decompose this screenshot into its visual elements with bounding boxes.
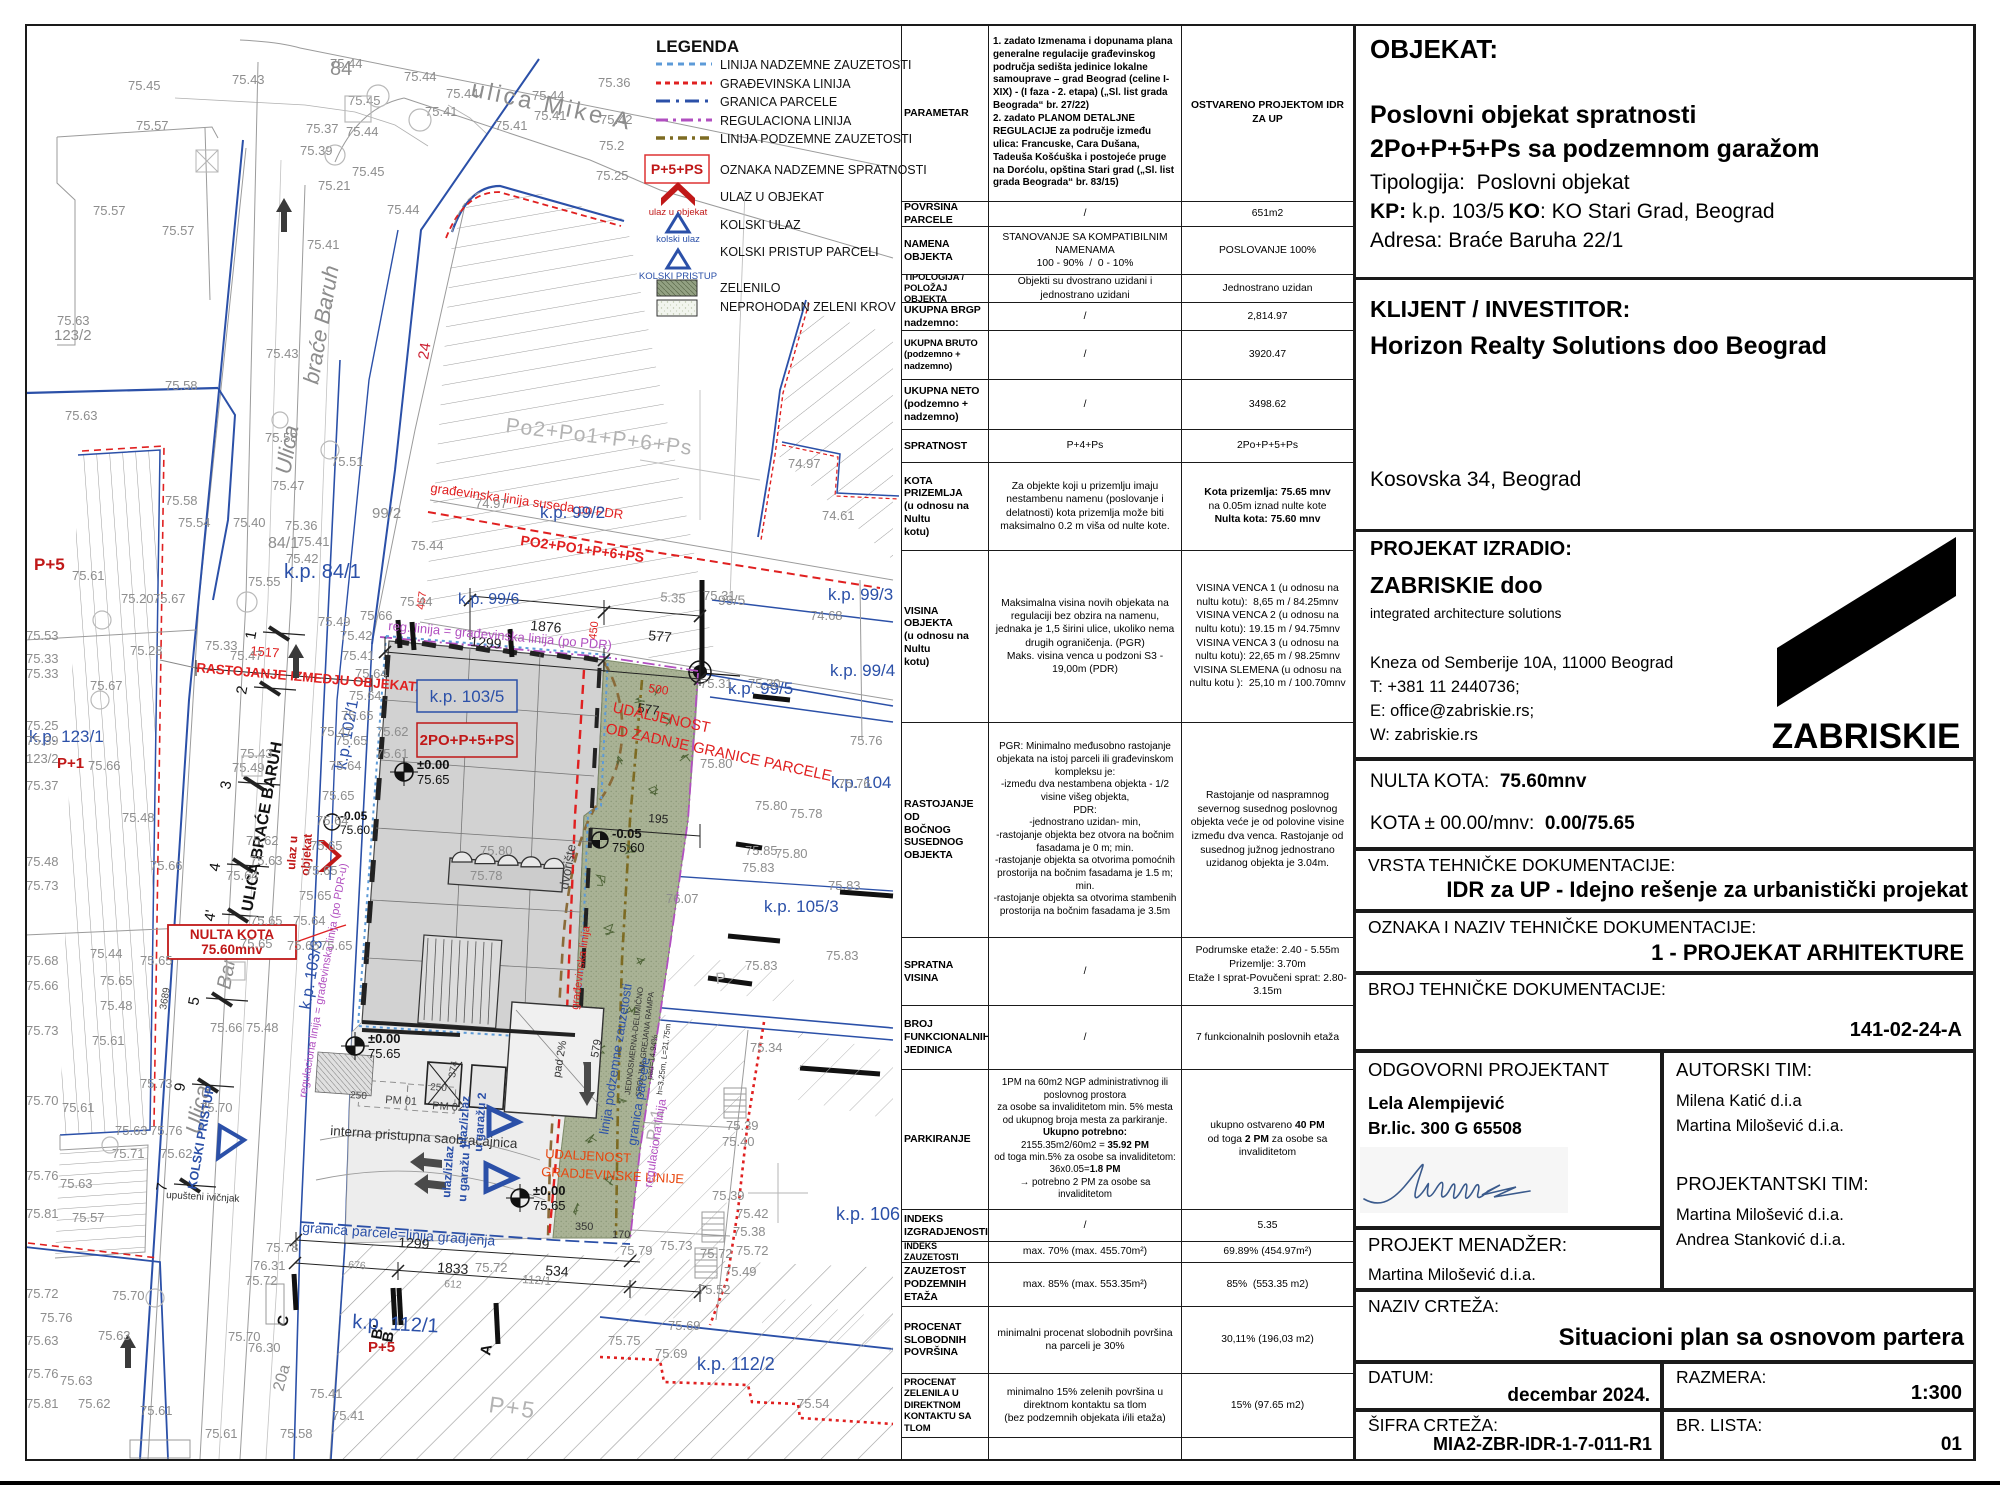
svg-text:ZABRISKIE: ZABRISKIE — [1772, 717, 1961, 756]
